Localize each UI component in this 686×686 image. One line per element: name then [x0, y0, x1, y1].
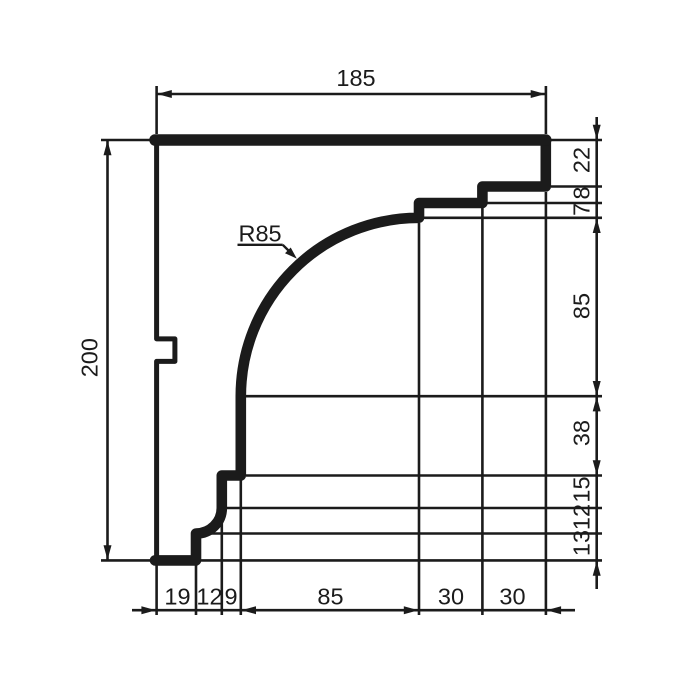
svg-text:85: 85: [317, 584, 343, 610]
svg-text:38: 38: [568, 420, 594, 446]
svg-text:R85: R85: [239, 221, 282, 247]
svg-text:12: 12: [196, 584, 222, 610]
svg-text:22: 22: [568, 147, 594, 173]
svg-text:30: 30: [438, 584, 464, 610]
svg-text:185: 185: [336, 65, 375, 91]
svg-text:13: 13: [568, 530, 594, 556]
svg-text:85: 85: [568, 293, 594, 319]
svg-text:15: 15: [568, 476, 594, 502]
svg-text:9: 9: [224, 584, 237, 610]
svg-text:8: 8: [568, 186, 594, 199]
svg-text:7: 7: [568, 203, 594, 216]
svg-text:200: 200: [77, 338, 103, 377]
svg-text:30: 30: [499, 584, 525, 610]
svg-text:12: 12: [568, 504, 594, 530]
svg-text:19: 19: [164, 584, 190, 610]
